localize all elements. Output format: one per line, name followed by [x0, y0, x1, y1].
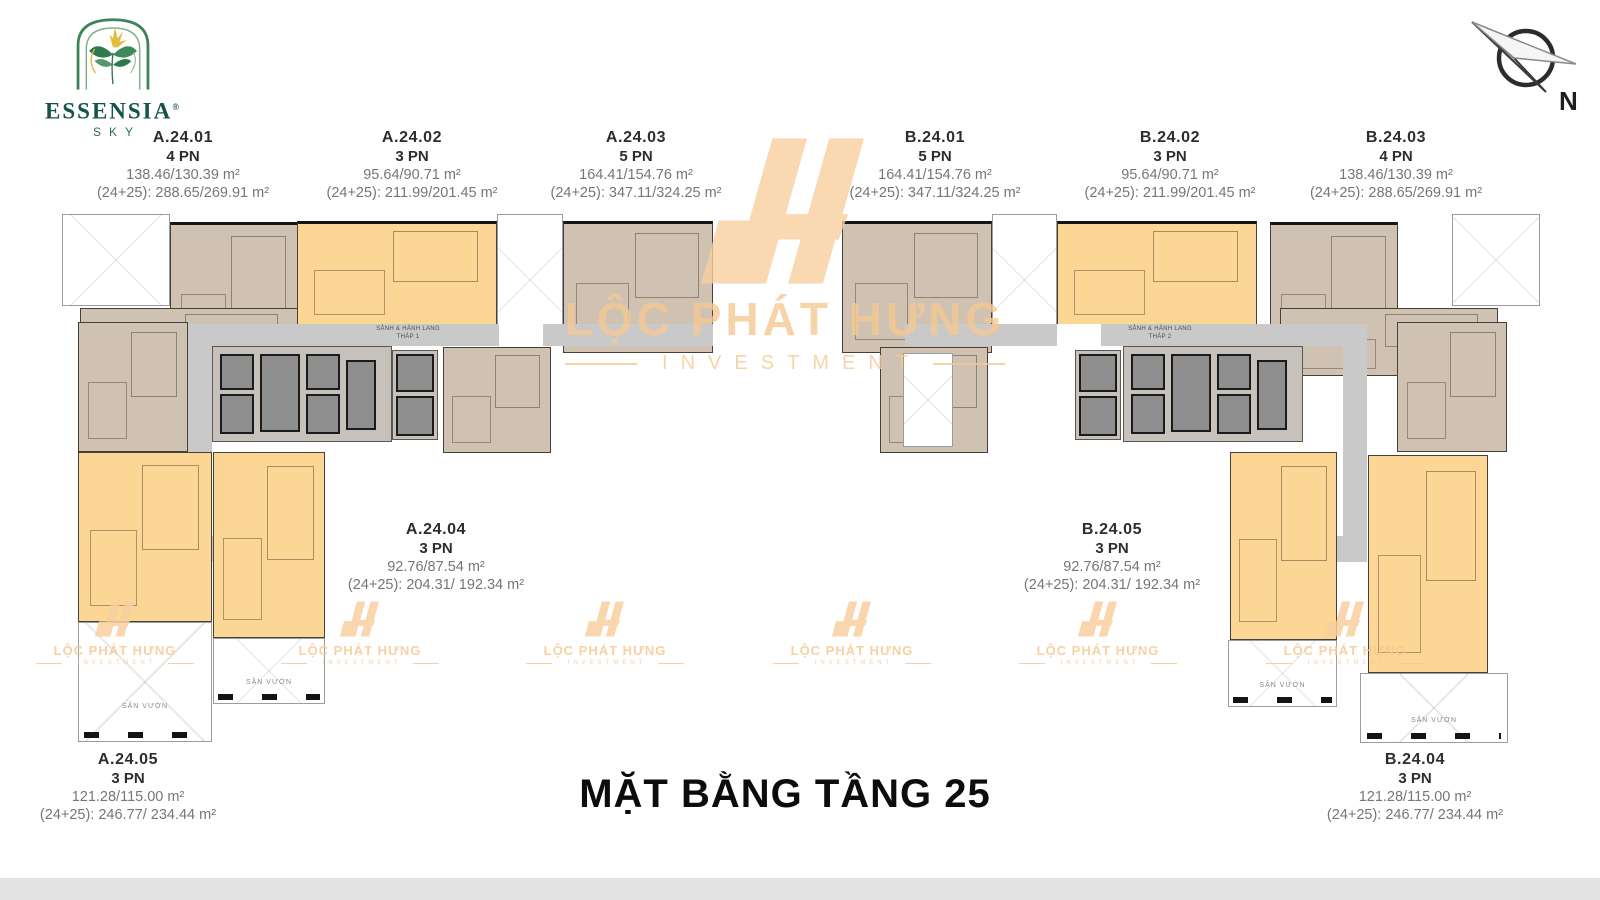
unit-label-a2401: A.24.01 4 PN 138.46/130.39 m² (24+25): 2…	[63, 128, 303, 202]
elevator-shaft	[1131, 394, 1165, 434]
essensia-arch-icon	[67, 12, 159, 90]
unit-area: 138.46/130.39 m²	[63, 166, 303, 184]
unit-label-b2403: B.24.03 4 PN 138.46/130.39 m² (24+25): 2…	[1276, 128, 1516, 202]
corridor-tower-b: SẢNH & HÀNH LANG THÁP 2	[905, 324, 1367, 346]
corridor-label-line1: SẢNH & HÀNH LANG	[1128, 326, 1192, 332]
unit-area-combined: (24+25): 347.11/324.25 m²	[516, 184, 756, 202]
elevator-shaft	[1257, 360, 1287, 430]
elevator-shaft	[306, 354, 340, 390]
unit-id: B.24.01	[815, 128, 1055, 147]
unit-bedrooms: 3 PN	[8, 769, 248, 788]
elevator-shaft	[220, 354, 254, 390]
corridor-gap	[1057, 324, 1101, 346]
unit-label-a2404: A.24.04 3 PN 92.76/87.54 m² (24+25): 204…	[316, 520, 556, 594]
plan-unit-b2402	[1057, 221, 1257, 325]
elevator-shaft	[1079, 354, 1117, 392]
balcony	[1452, 214, 1540, 306]
elevator-shaft	[346, 360, 376, 430]
elevator-shaft	[396, 354, 434, 392]
unit-area: 138.46/130.39 m²	[1276, 166, 1516, 184]
unit-label-a2403: A.24.03 5 PN 164.41/154.76 m² (24+25): 3…	[516, 128, 756, 202]
unit-area: 121.28/115.00 m²	[8, 788, 248, 806]
unit-area-combined: (24+25): 288.65/269.91 m²	[63, 184, 303, 202]
plan-unit-a2404	[213, 452, 325, 638]
brand-logo: ESSENSIA® SKY	[28, 12, 198, 139]
unit-id: B.24.02	[1050, 128, 1290, 147]
unit-id: A.24.05	[8, 750, 248, 769]
unit-area-combined: (24+25): 204.31/ 192.34 m²	[992, 576, 1232, 594]
unit-id: A.24.03	[516, 128, 756, 147]
corridor-label-line1: SẢNH & HÀNH LANG	[376, 326, 440, 332]
elevator-shaft	[1171, 354, 1211, 432]
unit-area-combined: (24+25): 211.99/201.45 m²	[292, 184, 532, 202]
unit-area: 92.76/87.54 m²	[316, 558, 556, 576]
compass-label: N	[1559, 86, 1578, 114]
unit-label-b2404: B.24.04 3 PN 121.28/115.00 m² (24+25): 2…	[1295, 750, 1535, 824]
unit-area: 164.41/154.76 m²	[516, 166, 756, 184]
unit-label-a2402: A.24.02 3 PN 95.64/90.71 m² (24+25): 211…	[292, 128, 532, 202]
corridor-label-line2: THÁP 1	[397, 334, 420, 340]
corridor-label-line2: THÁP 2	[1149, 334, 1172, 340]
registered-mark: ®	[172, 102, 181, 112]
unit-area-combined: (24+25): 204.31/ 192.34 m²	[316, 576, 556, 594]
unit-id: B.24.03	[1276, 128, 1516, 147]
unit-area-combined: (24+25): 246.77/ 234.44 m²	[1295, 806, 1535, 824]
unit-bedrooms: 4 PN	[63, 147, 303, 166]
balcony	[903, 353, 953, 447]
unit-bedrooms: 3 PN	[992, 539, 1232, 558]
plan-unit-b2405	[1230, 452, 1337, 640]
garden-b2405: SÂN VƯỜN	[1228, 640, 1337, 707]
elevator-shaft	[220, 394, 254, 434]
corridor-label: SẢNH & HÀNH LANG THÁP 1	[308, 326, 508, 341]
elevator-shaft	[1131, 354, 1165, 390]
garden-label: SÂN VƯỜN	[214, 679, 324, 686]
elevator-shaft	[306, 394, 340, 434]
unit-area: 95.64/90.71 m²	[1050, 166, 1290, 184]
brand-name: ESSENSIA®	[28, 95, 198, 124]
garden-label: SÂN VƯỜN	[79, 703, 211, 710]
elevator-shaft	[1217, 354, 1251, 390]
unit-area: 95.64/90.71 m²	[292, 166, 532, 184]
garden-b2404: SÂN VƯỜN	[1360, 673, 1508, 743]
unit-bedrooms: 3 PN	[1295, 769, 1535, 788]
plan-unit-b2404-upper	[1397, 322, 1507, 452]
unit-id: A.24.01	[63, 128, 303, 147]
unit-bedrooms: 3 PN	[1050, 147, 1290, 166]
plan-unit-a2405-upper	[78, 322, 188, 452]
unit-bedrooms: 5 PN	[516, 147, 756, 166]
unit-id: A.24.04	[316, 520, 556, 539]
unit-area: 164.41/154.76 m²	[815, 166, 1055, 184]
unit-bedrooms: 4 PN	[1276, 147, 1516, 166]
unit-id: B.24.05	[992, 520, 1232, 539]
garden-label: SÂN VƯỜN	[1361, 717, 1507, 724]
plan-unit-a2403-lower	[443, 347, 551, 453]
page-title: MẶT BẰNG TẦNG 25	[540, 772, 1030, 817]
unit-area-combined: (24+25): 288.65/269.91 m²	[1276, 184, 1516, 202]
corridor-gap	[499, 324, 543, 346]
elevator-shaft	[260, 354, 300, 432]
unit-area-combined: (24+25): 246.77/ 234.44 m²	[8, 806, 248, 824]
bottom-bar	[0, 878, 1600, 900]
elevator-shaft	[396, 396, 434, 436]
plan-unit-a2402	[297, 221, 497, 325]
unit-area: 121.28/115.00 m²	[1295, 788, 1535, 806]
garden-a2404: SÂN VƯỜN	[213, 638, 325, 704]
elevator-shaft	[1079, 396, 1117, 436]
north-arrow-icon: N	[1462, 12, 1584, 114]
unit-area: 92.76/87.54 m²	[992, 558, 1232, 576]
unit-label-a2405: A.24.05 3 PN 121.28/115.00 m² (24+25): 2…	[8, 750, 248, 824]
garden-a2405: SÂN VƯỜN	[78, 622, 212, 742]
garden-label: SÂN VƯỜN	[1229, 682, 1336, 689]
brand-name-text: ESSENSIA	[45, 99, 172, 124]
unit-label-b2405: B.24.05 3 PN 92.76/87.54 m² (24+25): 204…	[992, 520, 1232, 594]
unit-bedrooms: 5 PN	[815, 147, 1055, 166]
unit-label-b2401: B.24.01 5 PN 164.41/154.76 m² (24+25): 3…	[815, 128, 1055, 202]
compass: N	[1462, 12, 1584, 114]
unit-bedrooms: 3 PN	[316, 539, 556, 558]
balcony	[62, 214, 170, 306]
unit-area-combined: (24+25): 211.99/201.45 m²	[1050, 184, 1290, 202]
unit-id: A.24.02	[292, 128, 532, 147]
plan-unit-b2404	[1368, 455, 1488, 673]
plan-unit-a2405	[78, 452, 212, 622]
unit-label-b2402: B.24.02 3 PN 95.64/90.71 m² (24+25): 211…	[1050, 128, 1290, 202]
unit-area-combined: (24+25): 347.11/324.25 m²	[815, 184, 1055, 202]
corridor-tower-b-vertical	[1343, 346, 1367, 558]
corridor-tower-a: SẢNH & HÀNH LANG THÁP 1	[188, 324, 713, 346]
elevator-shaft	[1217, 394, 1251, 434]
unit-bedrooms: 3 PN	[292, 147, 532, 166]
unit-id: B.24.04	[1295, 750, 1535, 769]
